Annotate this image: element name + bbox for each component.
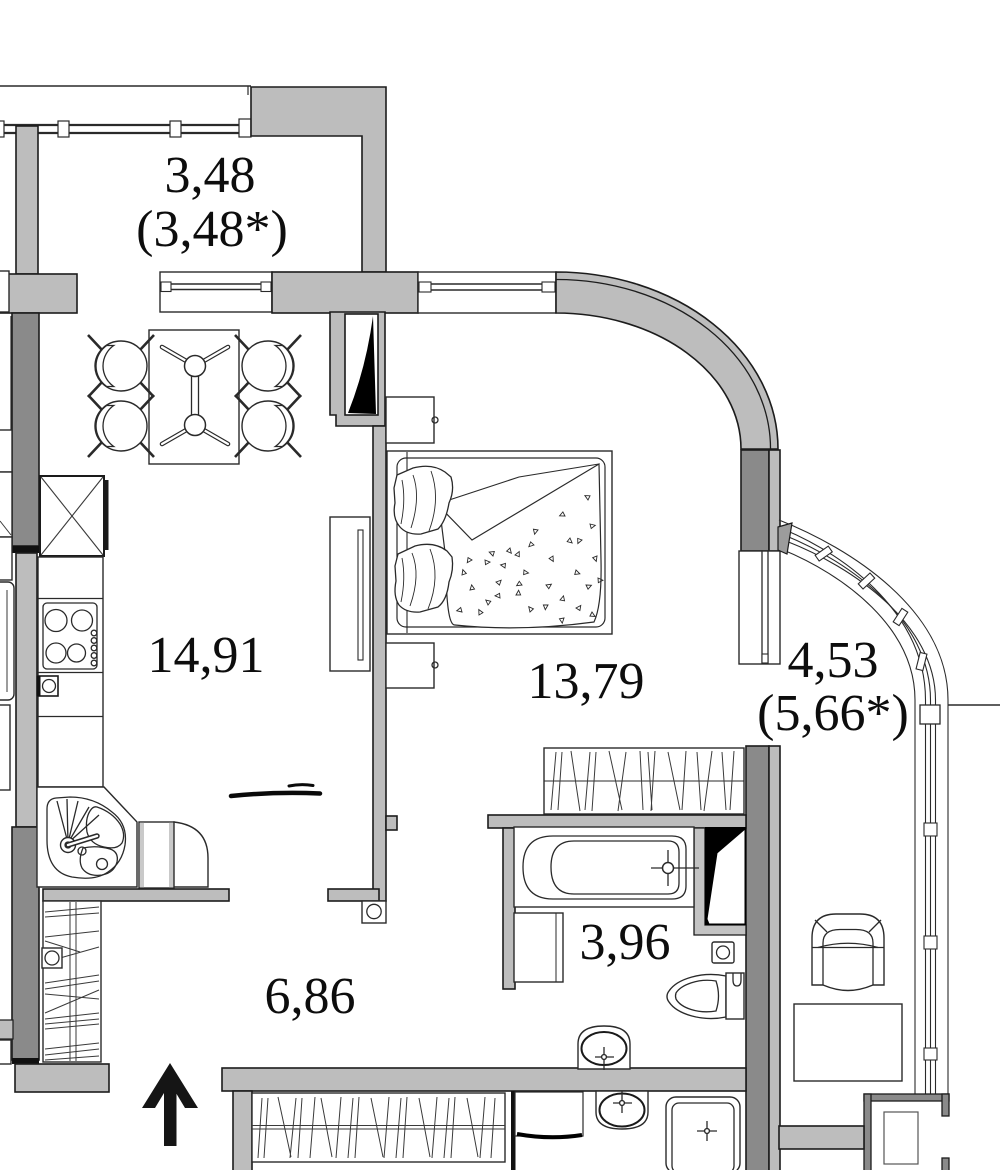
svg-text:3,96: 3,96 bbox=[580, 914, 671, 971]
svg-text:3,48: 3,48 bbox=[165, 147, 256, 204]
svg-text:(3,48*): (3,48*) bbox=[136, 201, 288, 258]
svg-text:13,79: 13,79 bbox=[528, 653, 645, 710]
svg-text:14,91: 14,91 bbox=[148, 627, 265, 684]
svg-text:6,86: 6,86 bbox=[265, 968, 356, 1025]
svg-text:(5,66*): (5,66*) bbox=[757, 685, 909, 742]
svg-text:4,53: 4,53 bbox=[788, 632, 879, 689]
